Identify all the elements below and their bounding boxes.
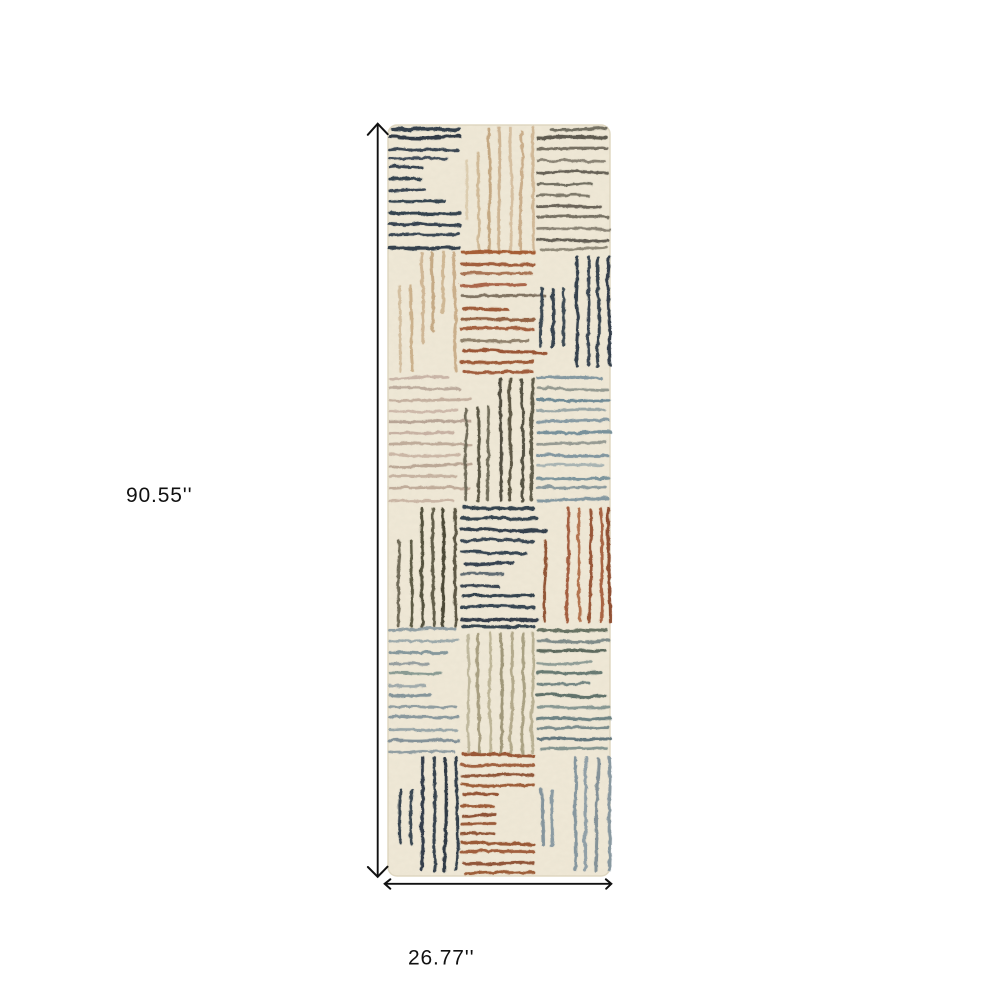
- svg-text:90.55'': 90.55'': [126, 484, 193, 507]
- svg-text:26.77'': 26.77'': [408, 947, 475, 970]
